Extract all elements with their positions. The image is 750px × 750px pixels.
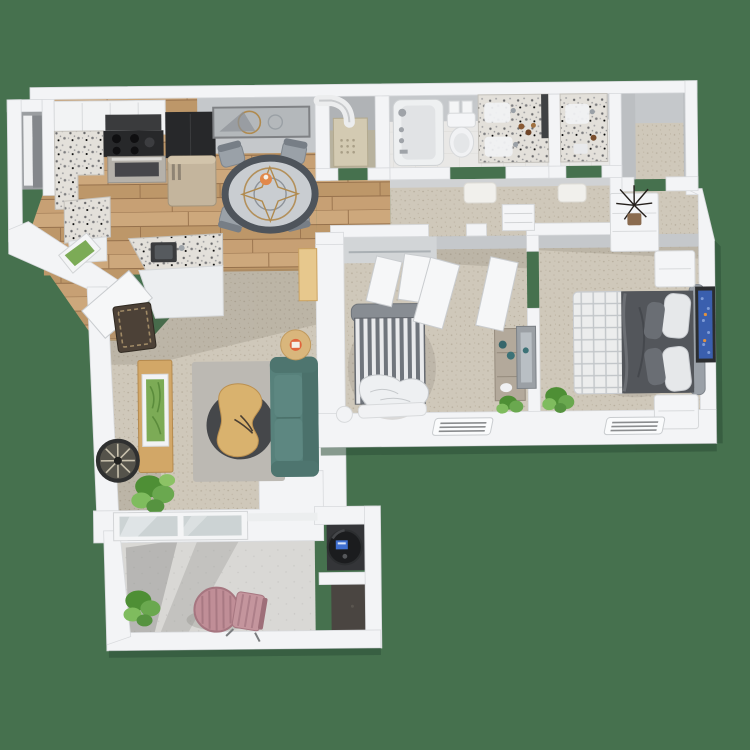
plant-pot — [627, 213, 641, 225]
living-east-wall — [316, 244, 347, 508]
bed2-foot-throw — [358, 402, 427, 418]
oven-window — [115, 162, 159, 176]
floor-vent-bedroom-2 — [432, 418, 493, 436]
sink-basin — [155, 245, 173, 259]
bedroom-divider-a — [527, 235, 539, 251]
hall-south-wall-a — [330, 224, 428, 237]
furnace-west-wall — [315, 96, 330, 180]
primary-nook — [610, 185, 659, 251]
pillow-white-b — [662, 345, 693, 392]
range-hood — [105, 114, 161, 131]
storage-closet-lower-floor — [331, 584, 365, 630]
door-mullion — [177, 514, 183, 538]
water-heater — [328, 530, 362, 564]
toilet-tank — [447, 113, 475, 127]
sofa-arm-bottom — [271, 461, 319, 478]
leaning-mirror-strip — [541, 94, 548, 138]
wall-mirror-art — [213, 107, 309, 138]
towel — [449, 101, 459, 114]
storage-divider-wall — [319, 572, 365, 584]
bath-divider-wall — [548, 94, 561, 178]
fridge-top-shine — [168, 156, 216, 165]
candle-label — [292, 342, 300, 348]
floor-basket — [336, 406, 352, 422]
patio-south-wall — [107, 630, 381, 651]
mirror-glass — [521, 332, 533, 382]
linen-shelf — [502, 204, 534, 230]
teal-sofa — [270, 357, 319, 477]
furnace-south-stub-a — [316, 168, 338, 180]
floor-plan-render — [0, 0, 750, 750]
sofa-back — [302, 363, 319, 471]
bath1-south-wall-a — [390, 167, 450, 180]
wic-wall-face-w — [621, 93, 636, 179]
tub-spout — [400, 150, 408, 154]
wic-south-stub-e — [666, 177, 698, 191]
furnace-vents — [340, 139, 355, 154]
bath1-south-wall-b — [506, 166, 549, 178]
hallway — [502, 204, 534, 230]
sofa-cushion-a — [274, 375, 302, 417]
green-art — [146, 379, 165, 441]
bath2-south-stub-b — [602, 165, 622, 177]
heater-label — [336, 540, 348, 549]
vanity2-sink — [565, 104, 589, 124]
vanity1-sink-b — [485, 137, 513, 157]
hall-south-wall-b — [466, 224, 486, 236]
vanity2-tray — [574, 144, 588, 154]
hall-gap-carpet — [428, 221, 466, 237]
sofa-cushion-b — [274, 419, 302, 461]
door-track — [247, 513, 317, 522]
pillow-white-a — [661, 293, 691, 339]
closet-kitchen-wall — [42, 99, 55, 195]
oven-handle — [112, 157, 162, 161]
coat-closet-shelf — [23, 116, 33, 186]
blue-art — [698, 290, 713, 358]
furnace-east-wall — [375, 96, 390, 180]
entry-wing-west-wall — [7, 100, 22, 242]
wood-desk — [299, 249, 318, 301]
floor-plan-svg — [0, 0, 750, 750]
wic-south-stub-w — [622, 177, 634, 191]
heater-label-text — [338, 542, 346, 544]
bistro-table — [194, 587, 238, 631]
towel — [462, 101, 472, 114]
plaid-foot-throw — [573, 291, 626, 394]
furnace-south-stub-b — [368, 168, 390, 180]
bath-mat-2 — [558, 184, 586, 202]
storage-east-wall — [364, 506, 381, 648]
vanity1-sink-a — [484, 103, 510, 123]
bath2-south-stub-a — [549, 166, 566, 178]
floor-vent-primary — [604, 417, 665, 435]
bath-mat-1 — [464, 183, 496, 203]
primary-north-wall — [526, 222, 614, 235]
wall-clock — [98, 440, 138, 480]
closet-rod — [349, 251, 431, 252]
